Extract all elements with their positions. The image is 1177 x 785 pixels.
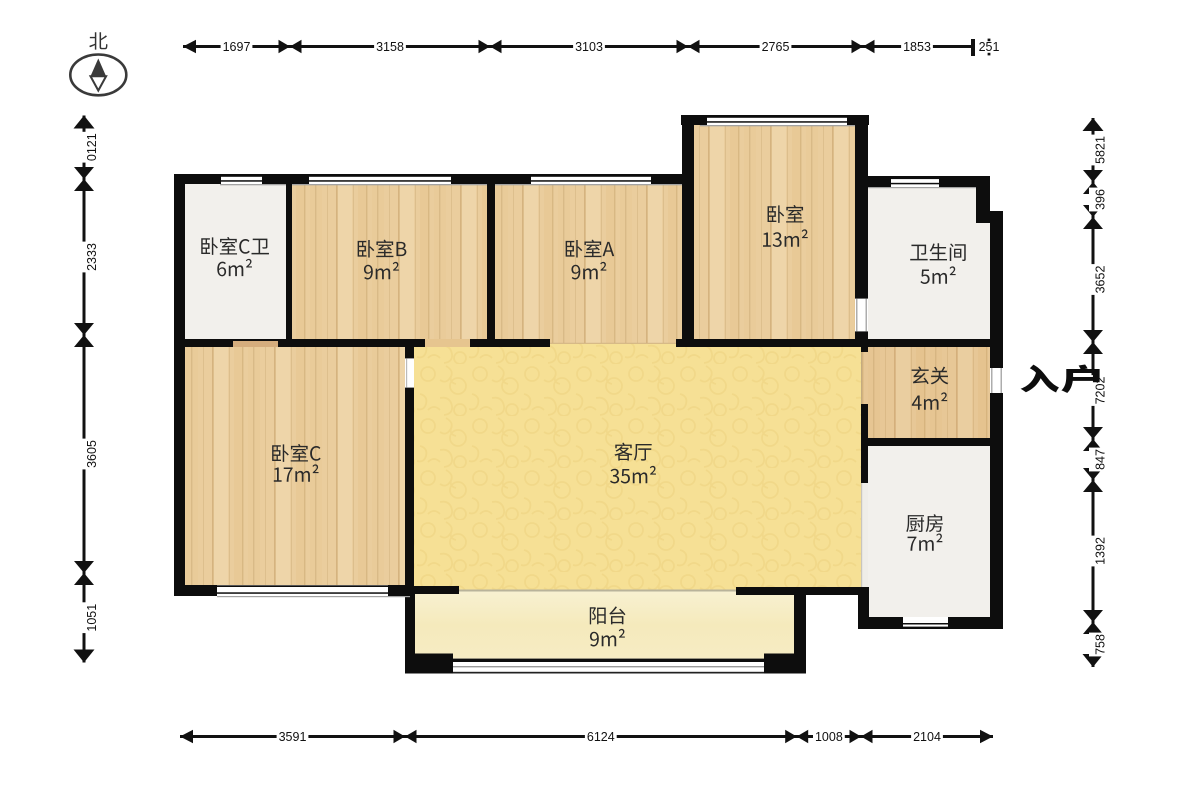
svg-text:1853: 1853 [903, 40, 931, 54]
svg-text:2104: 2104 [913, 730, 941, 744]
svg-text:758: 758 [1094, 634, 1108, 655]
svg-text:6124: 6124 [587, 730, 615, 744]
svg-text:2333: 2333 [85, 243, 99, 271]
svg-text:3652: 3652 [1094, 266, 1108, 294]
svg-text:1008: 1008 [815, 730, 843, 744]
svg-text:1697: 1697 [223, 40, 251, 54]
svg-text:3103: 3103 [575, 40, 603, 54]
svg-text:3591: 3591 [279, 730, 307, 744]
svg-text:847: 847 [1094, 449, 1108, 470]
svg-text:3605: 3605 [85, 440, 99, 468]
svg-text:396: 396 [1094, 189, 1108, 210]
svg-text:251: 251 [979, 40, 1000, 54]
svg-text:1392: 1392 [1094, 537, 1108, 565]
svg-text:1051: 1051 [85, 604, 99, 632]
svg-text:3158: 3158 [376, 40, 404, 54]
svg-text:2765: 2765 [762, 40, 790, 54]
svg-text:0121: 0121 [85, 133, 99, 161]
svg-text:5821: 5821 [1094, 136, 1108, 164]
